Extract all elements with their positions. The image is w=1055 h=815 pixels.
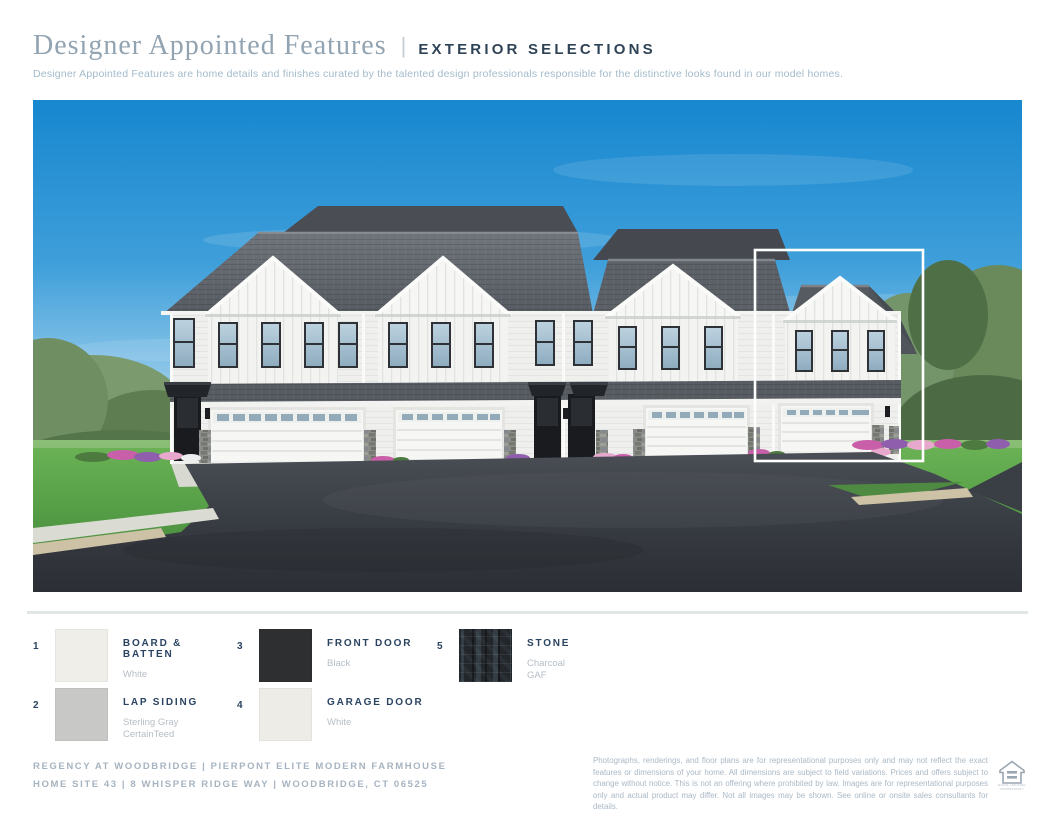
legend-item-lap-siding: 2 LAP SIDING Sterling Gray CertainTeed xyxy=(33,688,237,746)
title-separator: | xyxy=(401,33,407,59)
legend-number: 4 xyxy=(237,688,259,711)
exterior-rendering-image xyxy=(33,100,1022,592)
legend-label: BOARD & BATTEN xyxy=(123,638,237,660)
legend-item-garage-door: 4 GARAGE DOOR White xyxy=(237,688,437,746)
stone-swatch xyxy=(459,629,512,682)
page-header: Designer Appointed Features | EXTERIOR S… xyxy=(33,30,1023,80)
legend-label: STONE xyxy=(527,638,570,649)
section-divider xyxy=(27,611,1028,614)
selections-legend: 1 BOARD & BATTEN White 3 FRONT DOOR Blac… xyxy=(33,629,757,746)
legend-brand: CertainTeed xyxy=(123,729,198,741)
page-title: Designer Appointed Features xyxy=(33,30,387,62)
legend-number: 2 xyxy=(33,688,55,711)
legend-item-front-door: 3 FRONT DOOR Black xyxy=(237,629,437,687)
page-subtitle-tag: EXTERIOR SELECTIONS xyxy=(418,41,656,58)
legend-finish: Black xyxy=(327,658,412,670)
legal-disclaimer: Photographs, renderings, and floor plans… xyxy=(593,755,988,813)
board-batten-swatch xyxy=(55,629,108,682)
legend-number: 3 xyxy=(237,629,259,652)
community-info: REGENCY AT WOODBRIDGE | PIERPONT ELITE M… xyxy=(33,758,447,793)
front-door-swatch xyxy=(259,629,312,682)
legend-number: 5 xyxy=(437,629,459,652)
legend-label: LAP SIDING xyxy=(123,697,198,708)
legend-finish: Charcoal xyxy=(527,658,570,670)
legend-number: 1 xyxy=(33,629,55,652)
equal-housing-opportunity-label: EQUAL HOUSING OPPORTUNITY xyxy=(996,784,1028,791)
legend-item-stone: 5 STONE Charcoal GAF xyxy=(437,629,757,687)
legend-label: GARAGE DOOR xyxy=(327,697,423,708)
legend-finish: White xyxy=(327,717,423,729)
legend-finish: White xyxy=(123,669,237,681)
legend-item-board-batten: 1 BOARD & BATTEN White xyxy=(33,629,237,687)
home-site-line: HOME SITE 43 | 8 WHISPER RIDGE WAY | WOO… xyxy=(33,776,447,794)
garage-door-swatch xyxy=(259,688,312,741)
legend-label: FRONT DOOR xyxy=(327,638,412,649)
legend-brand: GAF xyxy=(527,670,570,682)
page-description: Designer Appointed Features are home det… xyxy=(33,68,1023,80)
legend-finish: Sterling Gray xyxy=(123,717,198,729)
community-line: REGENCY AT WOODBRIDGE | PIERPONT ELITE M… xyxy=(33,758,447,776)
lap-siding-swatch xyxy=(55,688,108,741)
